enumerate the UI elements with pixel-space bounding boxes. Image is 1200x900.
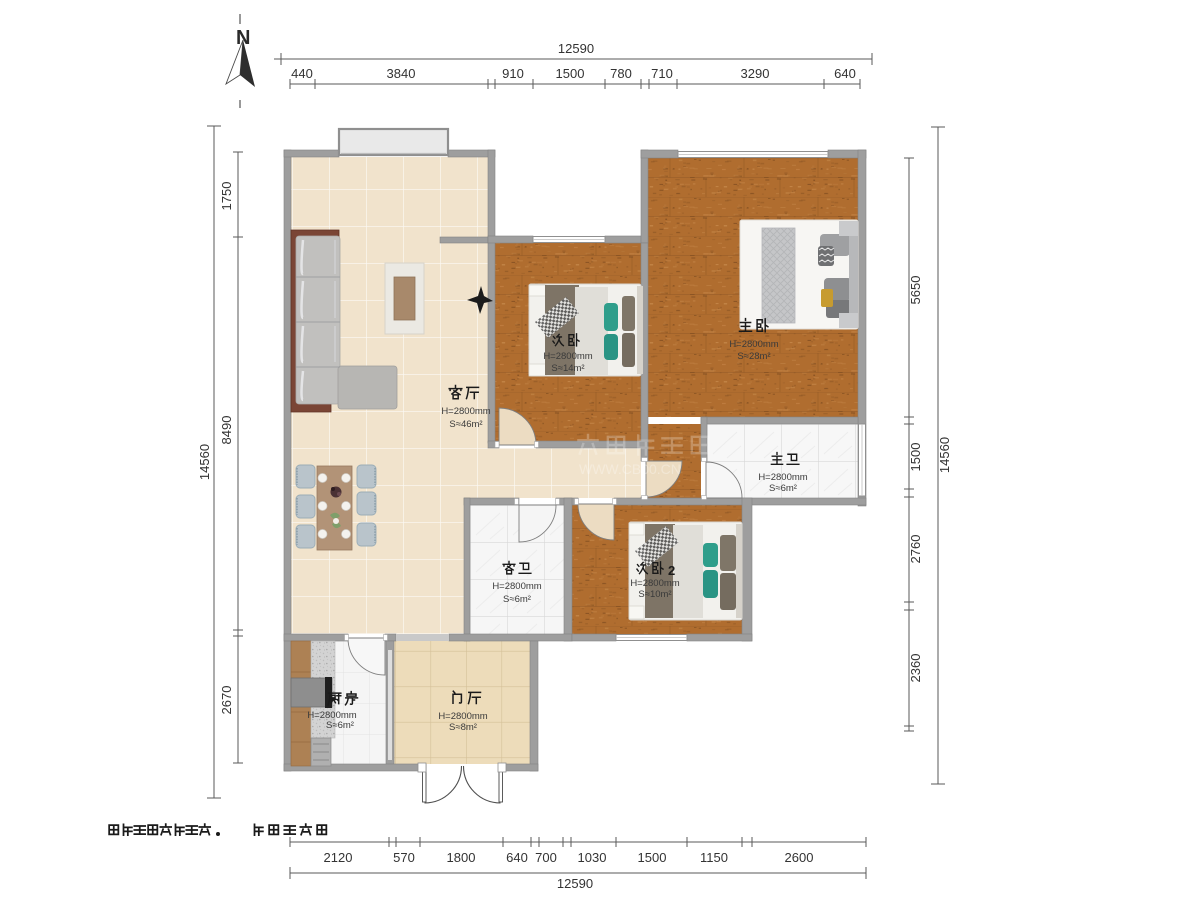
svg-text:3290: 3290 bbox=[741, 66, 770, 81]
svg-text:780: 780 bbox=[610, 66, 632, 81]
svg-text:2600: 2600 bbox=[785, 850, 814, 865]
svg-text:S≈8m²: S≈8m² bbox=[449, 722, 477, 733]
svg-text:H=2800mm: H=2800mm bbox=[441, 406, 490, 417]
svg-text:1500: 1500 bbox=[638, 850, 667, 865]
svg-text:H=2800mm: H=2800mm bbox=[543, 351, 592, 362]
svg-text:2120: 2120 bbox=[324, 850, 353, 865]
svg-text:1800: 1800 bbox=[447, 850, 476, 865]
svg-text:8490: 8490 bbox=[219, 416, 234, 445]
svg-text:H=2800mm: H=2800mm bbox=[630, 578, 679, 589]
svg-text:1750: 1750 bbox=[219, 182, 234, 211]
svg-text:1500: 1500 bbox=[556, 66, 585, 81]
svg-text:14560: 14560 bbox=[937, 437, 952, 473]
svg-text:H=2800mm: H=2800mm bbox=[438, 711, 487, 722]
svg-text:S≈28m²: S≈28m² bbox=[737, 351, 770, 362]
svg-text:H=2800mm: H=2800mm bbox=[492, 581, 541, 592]
svg-text:3840: 3840 bbox=[387, 66, 416, 81]
svg-text:2760: 2760 bbox=[908, 535, 923, 564]
svg-text:S≈14m²: S≈14m² bbox=[551, 363, 584, 374]
svg-text:S≈6m²: S≈6m² bbox=[326, 720, 354, 731]
svg-text:1500: 1500 bbox=[908, 443, 923, 472]
svg-text:5650: 5650 bbox=[908, 276, 923, 305]
svg-text:12590: 12590 bbox=[557, 876, 593, 891]
svg-text:440: 440 bbox=[291, 66, 313, 81]
svg-text:700: 700 bbox=[535, 850, 557, 865]
svg-text:1150: 1150 bbox=[700, 850, 728, 865]
svg-text:S≈10m²: S≈10m² bbox=[638, 589, 671, 600]
svg-text:H=2800mm: H=2800mm bbox=[758, 472, 807, 483]
svg-text:640: 640 bbox=[506, 850, 528, 865]
svg-text:710: 710 bbox=[651, 66, 673, 81]
svg-text:WWW.CB00.CN: WWW.CB00.CN bbox=[579, 461, 681, 477]
svg-text:2360: 2360 bbox=[908, 654, 923, 683]
svg-text:2670: 2670 bbox=[219, 686, 234, 715]
svg-text:2: 2 bbox=[668, 563, 675, 578]
svg-text:S≈6m²: S≈6m² bbox=[769, 483, 797, 494]
svg-text:12590: 12590 bbox=[558, 41, 594, 56]
svg-text:1030: 1030 bbox=[578, 850, 607, 865]
svg-text:570: 570 bbox=[393, 850, 415, 865]
svg-text:S≈46m²: S≈46m² bbox=[449, 419, 482, 430]
svg-text:640: 640 bbox=[834, 66, 856, 81]
svg-text:H=2800mm: H=2800mm bbox=[729, 339, 778, 350]
svg-text:14560: 14560 bbox=[197, 444, 212, 480]
svg-text:910: 910 bbox=[502, 66, 524, 81]
svg-text:S≈6m²: S≈6m² bbox=[503, 594, 531, 605]
